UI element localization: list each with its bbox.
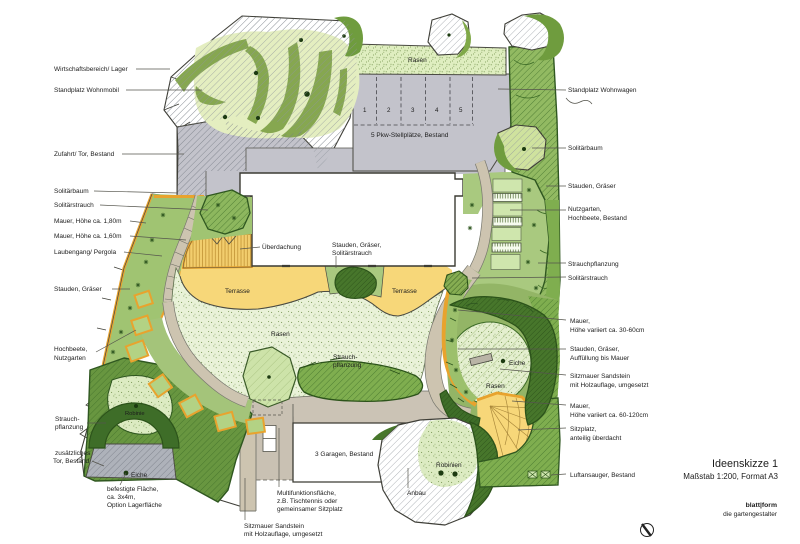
svg-text:z.B. Tischtennis oder: z.B. Tischtennis oder bbox=[277, 498, 338, 505]
svg-text:Strauch-: Strauch- bbox=[55, 416, 80, 423]
svg-text:Hochbeete,: Hochbeete, bbox=[54, 346, 87, 353]
svg-text:die gartengestalter: die gartengestalter bbox=[723, 511, 778, 518]
svg-text:Stauden, Gräser,: Stauden, Gräser, bbox=[332, 242, 381, 249]
svg-text:pflanzung: pflanzung bbox=[55, 424, 84, 431]
svg-text:3: 3 bbox=[411, 107, 415, 114]
svg-text:1: 1 bbox=[363, 107, 367, 114]
svg-text:Tor, Bestand: Tor, Bestand bbox=[53, 458, 90, 465]
svg-text:Hochbeete, Bestand: Hochbeete, Bestand bbox=[568, 215, 627, 222]
svg-text:Sitzmauer Sandstein: Sitzmauer Sandstein bbox=[244, 523, 304, 530]
svg-text:2: 2 bbox=[387, 107, 391, 114]
svg-text:zusätzliches: zusätzliches bbox=[55, 450, 91, 457]
svg-text:befestigte Fläche,: befestigte Fläche, bbox=[107, 486, 159, 493]
svg-text:Rasen: Rasen bbox=[486, 383, 505, 390]
svg-text:Überdachung: Überdachung bbox=[262, 243, 301, 251]
svg-text:Laubengang/ Pergola: Laubengang/ Pergola bbox=[54, 249, 117, 256]
svg-text:Strauchpflanzung: Strauchpflanzung bbox=[568, 261, 619, 268]
svg-text:ca. 3x4m,: ca. 3x4m, bbox=[107, 494, 135, 501]
svg-text:Solitärstrauch: Solitärstrauch bbox=[54, 202, 94, 209]
svg-text:Mauer, Höhe ca. 1,60m: Mauer, Höhe ca. 1,60m bbox=[54, 233, 122, 240]
svg-text:Stauden, Gräser,: Stauden, Gräser, bbox=[570, 346, 619, 353]
svg-text:Maßstab 1:200, Format A3: Maßstab 1:200, Format A3 bbox=[683, 472, 778, 481]
svg-text:Terrasse: Terrasse bbox=[392, 288, 417, 295]
svg-text:Stauden, Gräser: Stauden, Gräser bbox=[54, 286, 103, 293]
svg-text:Standplatz Wohnwagen: Standplatz Wohnwagen bbox=[568, 87, 637, 94]
svg-text:Höhe variiert ca. 30-60cm: Höhe variiert ca. 30-60cm bbox=[570, 327, 644, 334]
svg-text:Mauer,: Mauer, bbox=[570, 403, 590, 410]
svg-text:anteilig überdacht: anteilig überdacht bbox=[570, 435, 622, 442]
svg-text:Rasen: Rasen bbox=[271, 331, 290, 338]
svg-text:gemeinsamer Sitzplatz: gemeinsamer Sitzplatz bbox=[277, 506, 343, 513]
svg-text:Multifunktionsfläche,: Multifunktionsfläche, bbox=[277, 490, 336, 497]
svg-text:Solitärstrauch: Solitärstrauch bbox=[568, 275, 608, 282]
svg-text:Mauer, Höhe ca. 1,80m: Mauer, Höhe ca. 1,80m bbox=[54, 218, 122, 225]
svg-text:Höhe variiert ca. 60-120cm: Höhe variiert ca. 60-120cm bbox=[570, 412, 648, 419]
svg-text:Mauer,: Mauer, bbox=[570, 318, 590, 325]
svg-text:Luftansauger, Bestand: Luftansauger, Bestand bbox=[570, 472, 635, 479]
svg-text:mit Holzauflage, umgesetzt: mit Holzauflage, umgesetzt bbox=[570, 382, 649, 389]
svg-text:Nutzgarten: Nutzgarten bbox=[54, 355, 86, 362]
svg-text:3 Garagen, Bestand: 3 Garagen, Bestand bbox=[315, 451, 374, 458]
svg-text:Anbau: Anbau bbox=[407, 490, 426, 497]
svg-text:Rasen: Rasen bbox=[408, 57, 427, 64]
svg-text:Option Lagerfläche: Option Lagerfläche bbox=[107, 502, 162, 509]
svg-text:mit Holzauflage, umgesetzt: mit Holzauflage, umgesetzt bbox=[244, 531, 323, 538]
svg-text:Wirtschaftsbereich/ Lager: Wirtschaftsbereich/ Lager bbox=[54, 66, 129, 73]
svg-text:Nutzgarten,: Nutzgarten, bbox=[568, 206, 602, 213]
svg-text:Standplatz Wohnmobil: Standplatz Wohnmobil bbox=[54, 87, 119, 94]
svg-text:Strauch-: Strauch- bbox=[333, 354, 358, 361]
svg-text:Eiche: Eiche bbox=[131, 472, 148, 479]
svg-text:5 Pkw-Stellplätze, Bestand: 5 Pkw-Stellplätze, Bestand bbox=[371, 132, 449, 139]
svg-text:Stauden, Gräser: Stauden, Gräser bbox=[568, 183, 617, 190]
svg-text:Terrasse: Terrasse bbox=[225, 288, 250, 295]
svg-text:5: 5 bbox=[459, 107, 463, 114]
svg-text:Solitärstrauch: Solitärstrauch bbox=[332, 250, 372, 257]
svg-text:blatt|form: blatt|form bbox=[746, 502, 777, 509]
svg-text:Robinie: Robinie bbox=[125, 411, 145, 417]
svg-text:Solitärbaum: Solitärbaum bbox=[54, 188, 89, 195]
svg-text:Sitzplatz,: Sitzplatz, bbox=[570, 426, 597, 433]
svg-text:pflanzung: pflanzung bbox=[333, 362, 362, 369]
svg-text:Ideenskizze 1: Ideenskizze 1 bbox=[712, 458, 778, 470]
svg-text:Zufahrt/ Tor, Bestand: Zufahrt/ Tor, Bestand bbox=[54, 151, 115, 158]
svg-text:Sitzmauer Sandstein: Sitzmauer Sandstein bbox=[570, 373, 630, 380]
svg-text:Robinien: Robinien bbox=[436, 462, 462, 469]
svg-text:Solitärbaum: Solitärbaum bbox=[568, 145, 603, 152]
svg-text:Eiche: Eiche bbox=[509, 360, 526, 367]
svg-text:4: 4 bbox=[435, 107, 439, 114]
svg-text:Auffüllung bis Mauer: Auffüllung bis Mauer bbox=[570, 355, 630, 362]
